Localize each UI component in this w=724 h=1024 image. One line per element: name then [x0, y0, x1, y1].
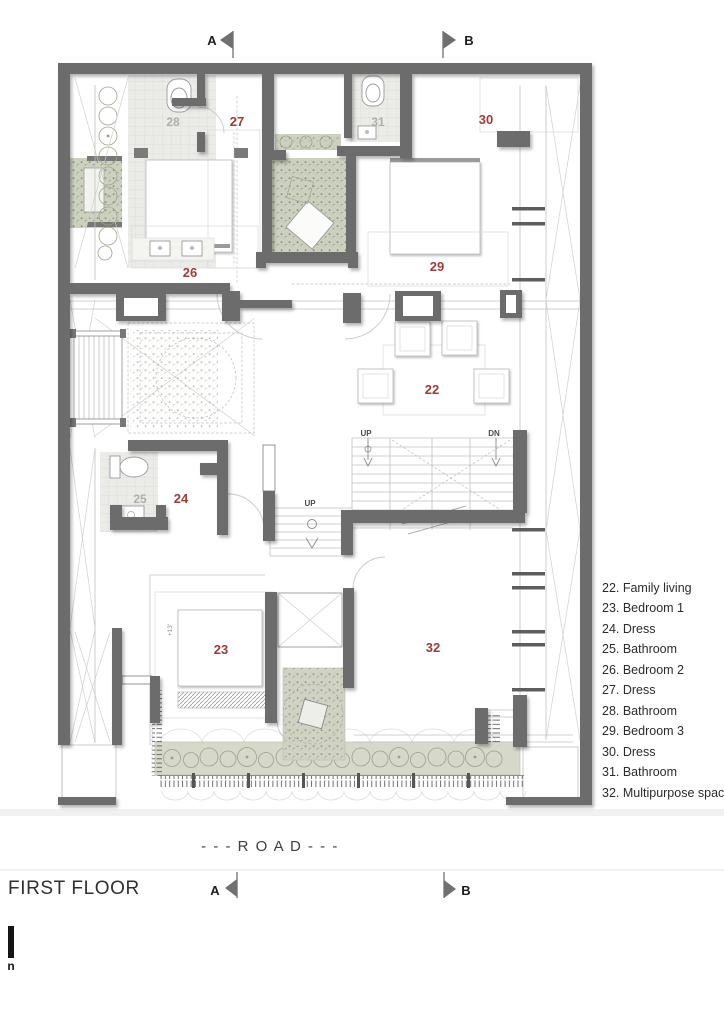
- legend-item: 25. Bathroom: [602, 642, 677, 656]
- room-label-31: 31: [371, 115, 385, 129]
- legend: 22. Family living 23. Bedroom 1 24. Dres…: [602, 581, 724, 800]
- section-a-bottom-flag-icon: [225, 879, 237, 897]
- bath31-planter-strip: [275, 134, 341, 150]
- legend-item: 30. Dress: [602, 745, 656, 759]
- legend-item: 28. Bathroom: [602, 704, 677, 718]
- section-marker-b-top: B: [443, 31, 474, 58]
- room-label-28: 28: [166, 115, 180, 129]
- legend-item: 23. Bedroom 1: [602, 601, 684, 615]
- legend-item: 27. Dress: [602, 683, 656, 697]
- section-a-top-label: A: [207, 33, 217, 48]
- section-b-bottom-label: B: [461, 883, 470, 898]
- room-label-26: 26: [183, 265, 197, 280]
- legend-item: 32. Multipurpose space: [602, 786, 724, 800]
- room-label-32: 32: [426, 640, 440, 655]
- section-b-top-flag-icon: [443, 31, 456, 49]
- legend-item: 29. Bedroom 3: [602, 724, 684, 738]
- section-a-bottom-label: A: [210, 883, 220, 898]
- legend-item: 24. Dress: [602, 622, 656, 636]
- titles: - - - R O A D - - - FIRST FLOOR n: [7, 838, 339, 973]
- road-label: - - - R O A D - - -: [201, 838, 339, 855]
- legend-item: 31. Bathroom: [602, 765, 677, 779]
- terrace-and-planters: [75, 632, 526, 800]
- legend-item: 26. Bedroom 2: [602, 663, 684, 677]
- section-marker-a-bottom: A: [210, 872, 237, 898]
- hall-stair-up-label: UP: [304, 499, 316, 508]
- section-a-top-flag-icon: [220, 31, 233, 49]
- stair-up-label: UP: [360, 429, 372, 438]
- dn-arrow: [492, 438, 500, 466]
- section-marker-b-bottom: B: [444, 872, 471, 898]
- section-b-bottom-flag-icon: [444, 880, 456, 898]
- hall-staircase: [270, 508, 352, 556]
- section-b-top-label: B: [464, 33, 473, 48]
- room-label-22: 22: [425, 382, 439, 397]
- tree-planter: [283, 668, 345, 760]
- floor-plan-page: 28 27 31 30 26 29 22 25 24 23 32 UP DN U…: [0, 0, 724, 1024]
- scale-mark: [8, 926, 14, 958]
- floor-plan-canvas: 28 27 31 30 26 29 22 25 24 23 32 UP DN U…: [0, 0, 724, 1024]
- room-label-25: 25: [133, 492, 147, 506]
- shaft: [278, 593, 342, 647]
- stair-dn-label: DN: [488, 429, 500, 438]
- level-note: +13': [167, 624, 174, 636]
- room-label-24: 24: [174, 491, 189, 506]
- room-label-29: 29: [430, 259, 444, 274]
- louver-window: [70, 329, 126, 427]
- up-arrow: [364, 438, 372, 466]
- pier-cores: [124, 295, 516, 316]
- bed-29: [390, 162, 480, 254]
- room-label-23: 23: [214, 642, 228, 657]
- room-label-30: 30: [479, 112, 493, 127]
- section-marker-a-top: A: [207, 31, 233, 58]
- room-label-27: 27: [230, 114, 244, 129]
- legend-item: 22. Family living: [602, 581, 692, 595]
- central-planter: [272, 158, 346, 252]
- bed-23-rug: [178, 692, 272, 708]
- scale-glyph: n: [7, 959, 14, 973]
- family-living-seating: [358, 321, 509, 415]
- page-title: FIRST FLOOR: [8, 878, 140, 899]
